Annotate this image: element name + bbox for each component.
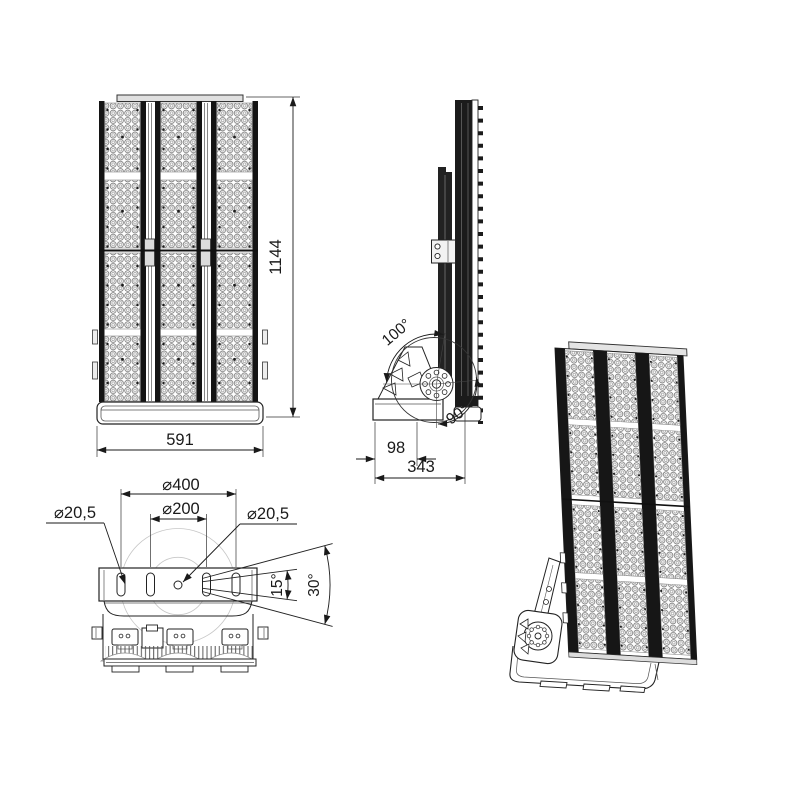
iso-pivot-hub <box>513 609 564 665</box>
side-bracket-foot <box>373 399 443 420</box>
top-tilt-outer-label: 30° <box>306 573 323 596</box>
floodlight-dimension-drawing: 1144 591 <box>0 0 800 800</box>
front-hinge-block-right <box>201 239 211 266</box>
front-base <box>97 402 263 424</box>
side-heatsink-profile <box>455 100 472 413</box>
side-offset-label: 98 <box>387 439 405 457</box>
top-outer-circle-label: ⌀400 <box>162 476 199 494</box>
side-lens-strip <box>472 100 478 413</box>
top-tilt-inner-label: 15° <box>269 573 286 596</box>
top-slot-diameter-label: ⌀20,5 <box>54 504 96 522</box>
front-width-label: 591 <box>166 431 194 449</box>
iso-luminaire-face <box>551 341 701 665</box>
top-center-hole-label: ⌀20,5 <box>247 505 289 523</box>
front-top-plate <box>117 95 243 102</box>
top-center-hole <box>174 581 182 589</box>
front-modules <box>99 101 258 402</box>
side-depth-label: 343 <box>407 458 435 476</box>
technical-drawing-sheet: 1144 591 <box>0 0 800 800</box>
top-feet <box>112 666 248 672</box>
top-driver-boxes <box>112 629 248 645</box>
side-arm-clamp <box>432 240 456 263</box>
front-hinge-block-left <box>145 239 155 266</box>
top-inner-circle-label: ⌀200 <box>162 500 199 518</box>
front-height-label: 1144 <box>267 239 285 274</box>
